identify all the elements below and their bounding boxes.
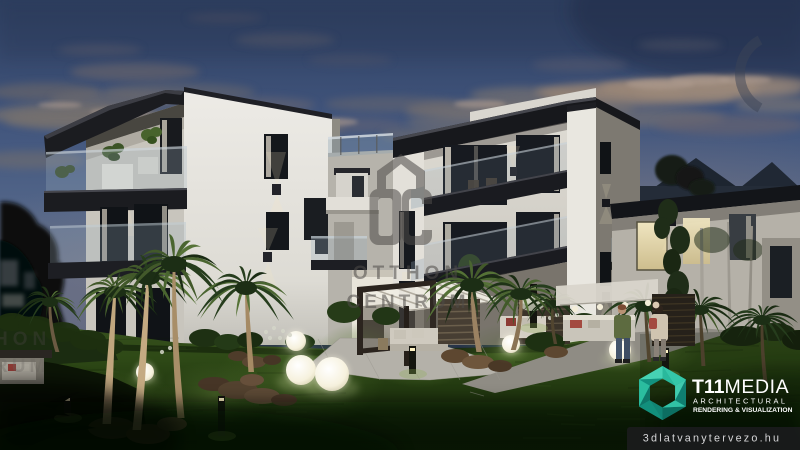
svg-text:T11MEDIA: T11MEDIA — [692, 376, 789, 398]
svg-text:RUM: RUM — [0, 356, 49, 377]
svg-text:OTTHON: OTTHON — [353, 263, 463, 284]
svg-text:3dlatvanytervezo.hu: 3dlatvanytervezo.hu — [643, 433, 781, 445]
svg-text:ARCHITECTURAL: ARCHITECTURAL — [693, 397, 788, 406]
svg-text:HON: HON — [0, 329, 51, 350]
svg-text:RENDERING & VISUALIZATION: RENDERING & VISUALIZATION — [693, 407, 793, 414]
svg-text:CENTRUM: CENTRUM — [347, 292, 470, 313]
